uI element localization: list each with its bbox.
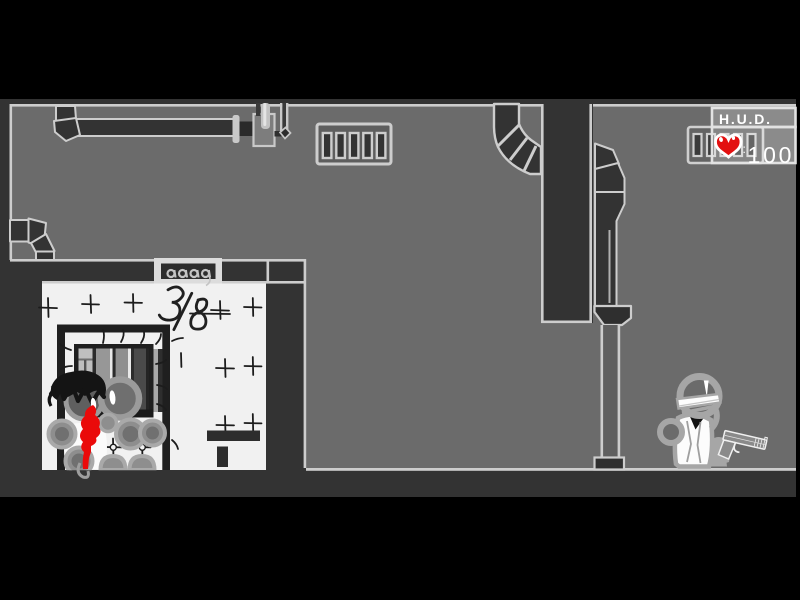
svg-text:H.U.D.: H.U.D.: [719, 111, 772, 127]
svg-text:100: 100: [748, 142, 795, 168]
svg-text::: :: [743, 142, 746, 156]
